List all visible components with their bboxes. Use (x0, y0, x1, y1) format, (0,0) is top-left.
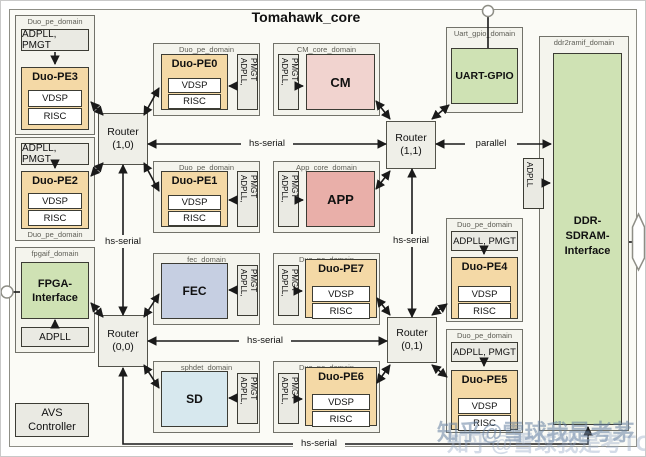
ddr-domain-label: ddr2ramif_domain (540, 38, 628, 47)
router-1-1-name: Router (395, 132, 427, 145)
fec-pmgt-l1: ADPLL, (238, 269, 248, 315)
avs-controller-block: AVS Controller (15, 403, 89, 437)
ddr-adpll-box: ADPLL (523, 158, 544, 209)
duo-pe2-risc: RISC (28, 210, 82, 226)
duo-pe6-pmgt-box: ADPLL, PMGT (278, 373, 299, 424)
duo-pe4-risc: RISC (458, 303, 511, 319)
router-0-1-coord: (0,1) (401, 340, 423, 353)
ddr-sdram-interface-block: DDR- SDRAM- Interface (553, 53, 622, 425)
duo-pe7-pmgt-l2: PMGT (289, 269, 299, 315)
duo-pe2-pmgt-box: ADPLL, PMGT (21, 143, 89, 165)
duo-pe0-pmgt-l1: ADPLL, (238, 58, 248, 109)
uart-gpio-domain: Uart_gpio_domain UART-GPIO (446, 27, 523, 113)
duo-pe0-block: Duo-PE0 VDSP RISC (161, 54, 228, 110)
duo-pe2-block: Duo-PE2 VDSP RISC (21, 171, 89, 229)
hs-serial-bottom-label: hs-serial (293, 437, 345, 450)
router-0-0-coord: (0,0) (112, 341, 134, 354)
hs-serial-left-vertical-label: hs-serial (97, 235, 149, 248)
cm-pmgt-l2: PMGT (289, 58, 299, 109)
ddr2ramif-domain: ddr2ramif_domain DDR- SDRAM- Interface (539, 36, 629, 431)
cm-core-domain: CM_core_domain ADPLL, PMGT CM (273, 43, 380, 116)
router-1-0: Router (1,0) (98, 113, 148, 165)
duo-pe5-domain: Duo_pe_domain ADPLL, PMGT Duo-PE5 VDSP R… (446, 329, 523, 433)
avs-line1: AVS (41, 406, 62, 420)
app-block: APP (306, 171, 375, 227)
duo-pe7-risc: RISC (312, 303, 370, 319)
duo-pe5-title: Duo-PE5 (452, 374, 517, 386)
duo-pe3-title: Duo-PE3 (22, 71, 88, 83)
uart-domain-label: Uart_gpio_domain (447, 29, 522, 38)
hs-serial-mid-label: hs-serial (239, 334, 291, 347)
duo-pe7-block: Duo-PE7 VDSP RISC (305, 259, 377, 318)
fpga-interface-line2: Interface (32, 291, 78, 305)
duo-pe2-domain: Duo_pe_domain ADPLL, PMGT Duo-PE2 VDSP R… (15, 137, 95, 241)
duo-pe3-block: Duo-PE3 VDSP RISC (21, 67, 89, 130)
duo-pe4-vdsp: VDSP (458, 286, 511, 302)
duo-pe0-vdsp: VDSP (168, 78, 221, 93)
ddr-line2: SDRAM- (554, 229, 621, 244)
duo-pe5-domain-label: Duo_pe_domain (447, 331, 522, 340)
duo-pe3-domain: Duo_pe_domain ADPLL, PMGT Duo-PE3 VDSP R… (15, 15, 95, 135)
duo-pe7-domain: Duo_pe_domain ADPLL, PMGT Duo-PE7 VDSP R… (273, 253, 380, 325)
duo-pe6-risc: RISC (312, 411, 370, 427)
duo-pe4-block: Duo-PE4 VDSP RISC (451, 257, 518, 319)
duo-pe7-title: Duo-PE7 (306, 263, 376, 275)
duo-pe1-vdsp: VDSP (168, 195, 221, 210)
duo-pe2-vdsp: VDSP (28, 193, 82, 209)
duo-pe5-block: Duo-PE5 VDSP RISC (451, 370, 518, 430)
ddr-text: DDR- SDRAM- Interface (554, 214, 621, 259)
router-1-0-name: Router (107, 126, 139, 139)
duo-pe4-title: Duo-PE4 (452, 261, 517, 273)
fpga-interface-block: FPGA- Interface (21, 262, 89, 319)
sd-block: SD (161, 371, 228, 427)
duo-pe2-domain-label: Duo_pe_domain (16, 230, 94, 239)
uart-gpio-block: UART-GPIO (451, 48, 518, 104)
parallel-label: parallel (465, 137, 517, 150)
duo-pe3-vdsp: VDSP (28, 90, 82, 107)
duo-pe7-pmgt-box: ADPLL, PMGT (278, 265, 299, 316)
router-1-1: Router (1,1) (386, 121, 436, 169)
app-pmgt-box: ADPLL, PMGT (278, 171, 299, 227)
cm-domain-label: CM_core_domain (274, 45, 379, 54)
fpga-interface-line1: FPGA- (38, 277, 72, 291)
fec-pmgt-l2: PMGT (248, 269, 258, 315)
cm-pmgt-l1: ADPLL, (279, 58, 289, 109)
duo-pe4-domain-label: Duo_pe_domain (447, 220, 522, 229)
duo-pe7-vdsp: VDSP (312, 286, 370, 302)
cm-pmgt-box: ADPLL, PMGT (278, 54, 299, 110)
duo-pe1-domain: Duo_pe_domain Duo-PE1 VDSP RISC ADPLL, P… (153, 161, 260, 233)
hs-serial-top-label: hs-serial (241, 137, 293, 150)
cm-block: CM (306, 54, 375, 110)
duo-pe4-pmgt-box: ADPLL, PMGT (451, 231, 518, 251)
duo-pe6-block: Duo-PE6 VDSP RISC (305, 367, 377, 426)
duo-pe3-pmgt-box: ADPLL, PMGT (21, 29, 89, 51)
duo-pe4-domain: Duo_pe_domain ADPLL, PMGT Duo-PE4 VDSP R… (446, 218, 523, 322)
duo-pe5-risc: RISC (458, 415, 511, 431)
router-0-0: Router (0,0) (98, 315, 148, 367)
duo-pe1-pmgt-box: ADPLL, PMGT (237, 171, 258, 227)
duo-pe3-domain-label: Duo_pe_domain (16, 17, 94, 26)
duo-pe0-domain: Duo_pe_domain Duo-PE0 VDSP RISC ADPLL, P… (153, 43, 260, 116)
app-core-domain: App_core_domain ADPLL, PMGT APP (273, 161, 380, 233)
fec-domain: fec_domain FEC ADPLL, PMGT (153, 253, 260, 325)
router-1-1-coord: (1,1) (400, 145, 422, 158)
fpgaif-domain: fpgaif_domain FPGA- Interface ADPLL (15, 247, 95, 353)
fec-block: FEC (161, 263, 228, 319)
duo-pe7-pmgt-l1: ADPLL, (279, 269, 289, 315)
router-1-0-coord: (1,0) (112, 139, 134, 152)
duo-pe5-pmgt-box: ADPLL, PMGT (451, 342, 518, 362)
tomahawk-core-diagram: Tomahawk_core Duo_pe_domain ADPLL, PMGT … (0, 0, 646, 457)
app-pmgt-l1: ADPLL, (279, 175, 289, 226)
duo-pe0-title: Duo-PE0 (162, 58, 227, 70)
ddr-line3: Interface (554, 244, 621, 259)
fec-pmgt-box: ADPLL, PMGT (237, 265, 258, 316)
duo-pe1-block: Duo-PE1 VDSP RISC (161, 171, 228, 227)
router-0-0-name: Router (107, 328, 139, 341)
sd-pmgt-box: ADPLL, PMGT (237, 373, 258, 424)
duo-pe3-risc: RISC (28, 108, 82, 125)
duo-pe6-domain: Duo_pe_domain ADPLL, PMGT Duo-PE6 VDSP R… (273, 361, 380, 433)
duo-pe6-pmgt-l2: PMGT (289, 377, 299, 423)
duo-pe0-pmgt-box: ADPLL, PMGT (237, 54, 258, 110)
duo-pe6-vdsp: VDSP (312, 394, 370, 410)
sd-pmgt-l1: ADPLL, (238, 377, 248, 423)
duo-pe5-vdsp: VDSP (458, 398, 511, 414)
duo-pe6-pmgt-l1: ADPLL, (279, 377, 289, 423)
duo-pe1-risc: RISC (168, 211, 221, 226)
app-pmgt-l2: PMGT (289, 175, 299, 226)
duo-pe1-title: Duo-PE1 (162, 175, 227, 187)
sphdet-domain: sphdet_domain SD ADPLL, PMGT (153, 361, 260, 433)
ddr-adpll-label: ADPLL (524, 162, 534, 208)
page-title: Tomahawk_core (223, 9, 389, 25)
duo-pe6-title: Duo-PE6 (306, 371, 376, 383)
fpgaif-domain-label: fpgaif_domain (16, 249, 94, 258)
router-0-1: Router (0,1) (387, 317, 437, 363)
duo-pe2-title: Duo-PE2 (22, 175, 88, 187)
duo-pe0-pmgt-l2: PMGT (248, 58, 258, 109)
duo-pe0-domain-label: Duo_pe_domain (154, 45, 259, 54)
duo-pe1-pmgt-l2: PMGT (248, 175, 258, 226)
router-0-1-name: Router (396, 327, 428, 340)
fpga-adpll-box: ADPLL (21, 327, 89, 347)
avs-line2: Controller (28, 420, 76, 434)
hs-serial-right-vertical-label: hs-serial (385, 234, 437, 247)
duo-pe1-pmgt-l1: ADPLL, (238, 175, 248, 226)
ddr-line1: DDR- (554, 214, 621, 229)
sd-pmgt-l2: PMGT (248, 377, 258, 423)
duo-pe0-risc: RISC (168, 94, 221, 109)
